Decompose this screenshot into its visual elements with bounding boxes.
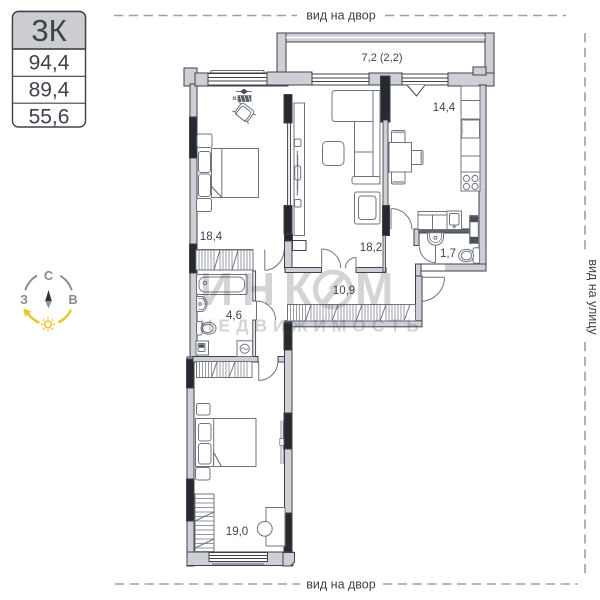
svg-text:4,6: 4,6 — [226, 310, 242, 322]
svg-text:ИНК: ИНК — [200, 263, 313, 315]
svg-text:вид на двор: вид на двор — [306, 9, 375, 23]
svg-text:вид на двор: вид на двор — [306, 578, 375, 592]
svg-text:55,6: 55,6 — [29, 106, 70, 129]
svg-text:1,7: 1,7 — [440, 248, 456, 260]
svg-text:В: В — [68, 293, 77, 307]
svg-text:14,4: 14,4 — [433, 102, 456, 114]
svg-text:С: С — [44, 269, 53, 283]
svg-text:18,2: 18,2 — [360, 242, 382, 254]
svg-text:10,9: 10,9 — [333, 285, 355, 297]
svg-text:18,4: 18,4 — [200, 231, 223, 243]
svg-text:З: З — [20, 293, 28, 307]
svg-text:7,2 (2,2): 7,2 (2,2) — [362, 52, 403, 64]
svg-text:19,0: 19,0 — [226, 526, 248, 538]
svg-text:94,4: 94,4 — [29, 52, 70, 75]
svg-text:М: М — [355, 263, 393, 315]
svg-text:89,4: 89,4 — [29, 79, 70, 102]
svg-text:вид на улицу: вид на улицу — [586, 259, 600, 335]
svg-text:3К: 3К — [31, 13, 66, 48]
